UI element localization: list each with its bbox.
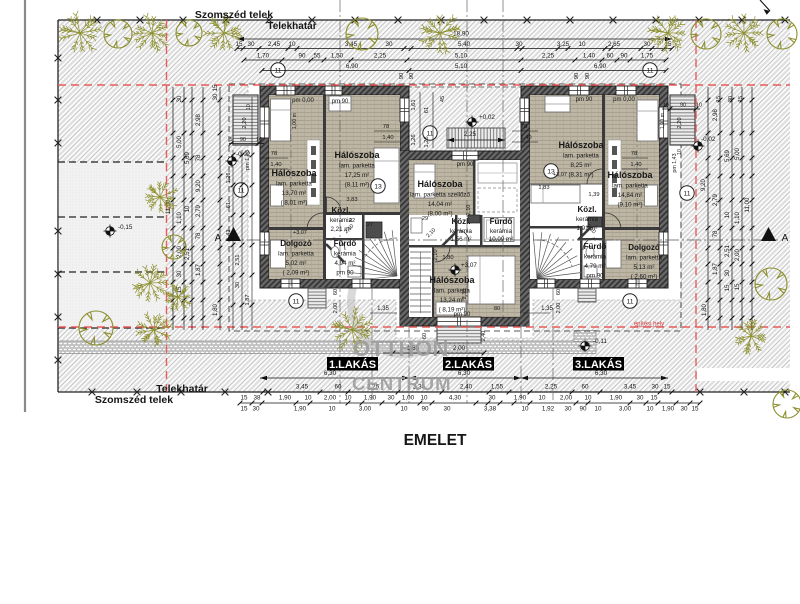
svg-text:Dolgozó: Dolgozó [628,243,660,252]
svg-text:1,35: 1,35 [377,306,389,312]
svg-text:2,98: 2,98 [195,113,202,125]
svg-text:15: 15 [650,395,658,402]
svg-text:kerámia: kerámia [490,228,513,235]
svg-text:1,80: 1,80 [212,303,219,315]
svg-text:Közl.: Közl. [331,206,350,215]
svg-text:11: 11 [626,298,633,305]
svg-text:15: 15 [240,406,248,413]
svg-text:1,50: 1,50 [331,53,344,60]
svg-text:30: 30 [724,269,731,276]
svg-text:A: A [782,233,789,244]
svg-text:1,40: 1,40 [270,162,281,168]
svg-text:90: 90 [574,73,580,79]
svg-text:90: 90 [298,53,306,60]
svg-text:Hálószoba: Hálószoba [334,150,380,160]
svg-text:kerámia: kerámia [450,228,473,235]
svg-text:10: 10 [724,211,731,218]
svg-text:8,25 m²: 8,25 m² [571,162,592,169]
svg-text:2,98: 2,98 [712,108,719,120]
svg-text:lam. parketta: lam. parketta [612,183,648,190]
svg-text:30: 30 [488,395,496,402]
svg-text:1,90: 1,90 [610,395,623,402]
svg-text:1,00 m: 1,00 m [292,112,298,129]
svg-text:1,90 m: 1,90 m [660,112,666,129]
svg-text:2,79: 2,79 [195,204,202,216]
svg-text:pm 1,43: pm 1,43 [672,153,678,172]
svg-text:61: 61 [226,202,232,208]
svg-text:2,25: 2,25 [545,384,558,391]
svg-text:EMELET: EMELET [404,432,467,449]
svg-text:2,51: 2,51 [724,244,731,256]
svg-text:3,00: 3,00 [619,406,632,413]
svg-text:10: 10 [420,395,428,402]
svg-text:2,20: 2,20 [242,117,248,128]
svg-text:Szomszéd telek: Szomszéd telek [95,394,173,406]
svg-text:5,69: 5,69 [184,151,191,163]
svg-text:78: 78 [195,232,202,239]
svg-text:(8,11 m²): (8,11 m²) [345,182,370,189]
svg-text:11,00: 11,00 [744,197,751,212]
svg-text:30: 30 [252,406,260,413]
svg-text:38: 38 [253,395,261,402]
svg-text:1,40: 1,40 [382,135,393,141]
svg-text:90: 90 [399,73,405,79]
svg-text:(9,10 m²): (9,10 m²) [617,202,642,209]
svg-text:2,65: 2,65 [608,41,621,48]
svg-text:90: 90 [421,406,429,413]
svg-text:-0,15: -0,15 [118,224,133,231]
svg-text:30: 30 [385,41,393,48]
svg-text:2,10: 2,10 [433,249,439,260]
svg-text:2,00: 2,00 [560,395,573,402]
svg-text:2,00: 2,00 [556,303,562,314]
svg-text:2,25: 2,25 [374,53,387,60]
svg-text:9,20: 9,20 [700,178,707,190]
svg-text:30: 30 [176,95,183,102]
svg-text:90: 90 [409,73,415,79]
svg-text:60: 60 [581,384,589,391]
svg-text:2.LAKÁS: 2.LAKÁS [445,358,492,371]
svg-text:60: 60 [333,289,339,295]
svg-text:5,10: 5,10 [455,53,468,60]
svg-text:3,00: 3,00 [359,406,372,413]
svg-text:( 2,60 m²): ( 2,60 m²) [631,274,658,281]
svg-text:5,02 m²: 5,02 m² [286,260,307,267]
svg-text:1,90: 1,90 [514,395,527,402]
svg-text:61: 61 [424,107,430,113]
svg-text:15: 15 [738,96,744,102]
svg-text:13,24 m²: 13,24 m² [440,297,464,304]
svg-text:pm 90: pm 90 [336,270,354,277]
svg-text:10: 10 [304,395,312,402]
svg-text:(8,00 m²): (8,00 m²) [427,211,452,218]
svg-text:Fürdő: Fürdő [584,242,607,251]
svg-text:5,69: 5,69 [724,149,731,161]
svg-text:1,39: 1,39 [588,192,599,198]
svg-text:2,40: 2,40 [460,384,473,391]
svg-text:+0,02: +0,02 [479,114,495,121]
svg-text:lam. parketta: lam. parketta [339,163,375,170]
svg-text:4,94 m²: 4,94 m² [335,260,356,267]
svg-text:(8,31 m²): (8,31 m²) [568,172,593,179]
svg-text:lam. parketta: lam. parketta [276,181,312,188]
svg-text:78: 78 [195,154,202,161]
svg-text:5,00: 5,00 [734,147,741,159]
svg-text:90: 90 [680,103,686,109]
svg-text:3,25: 3,25 [557,41,570,48]
svg-text:kerámia: kerámia [584,254,607,261]
svg-text:90: 90 [585,73,591,79]
svg-text:17,25 m²: 17,25 m² [345,172,369,179]
svg-text:Közl.: Közl. [451,217,470,226]
svg-text:1,40: 1,40 [630,162,641,168]
svg-text:2,20: 2,20 [677,117,683,128]
svg-text:Telekhatár: Telekhatár [267,21,316,32]
svg-text:1,10: 1,10 [176,211,183,223]
svg-text:2,00: 2,00 [333,303,339,314]
svg-text:80: 80 [494,306,500,312]
svg-text:30: 30 [387,395,395,402]
svg-text:Közl.: Közl. [577,205,596,214]
svg-text:1,70: 1,70 [257,53,270,60]
svg-text:1,80: 1,80 [442,255,453,261]
svg-text:15: 15 [663,384,671,391]
svg-text:kerámia: kerámia [334,251,357,258]
svg-text:lam. parketta: lam. parketta [278,251,314,258]
svg-text:2,00: 2,00 [453,345,466,352]
svg-text:1,87: 1,87 [195,263,202,275]
svg-text:10: 10 [663,103,669,109]
svg-text:45: 45 [440,96,446,102]
svg-text:pm 90: pm 90 [332,99,349,105]
svg-text:építési hely: építési hely [634,322,664,328]
svg-text:30: 30 [515,41,523,48]
svg-text:A: A [215,233,222,244]
svg-text:1,83: 1,83 [538,185,549,191]
svg-text:10: 10 [594,406,602,413]
svg-text:Dolgozó: Dolgozó [280,239,312,248]
svg-text:10: 10 [538,395,546,402]
svg-text:1,56 m²: 1,56 m² [451,236,472,243]
svg-text:CENTRUM: CENTRUM [352,373,452,394]
svg-text:18,90: 18,90 [453,31,469,38]
svg-text:90: 90 [240,137,246,143]
svg-text:15: 15 [724,284,731,291]
svg-text:-0,02: -0,02 [236,151,251,158]
svg-text:60: 60 [334,384,342,391]
svg-text:3.LAKÁS: 3.LAKÁS [575,358,622,371]
svg-text:1,55: 1,55 [491,384,504,391]
svg-text:6,90: 6,90 [594,63,607,70]
svg-text:1,92: 1,92 [542,406,555,413]
svg-text:10: 10 [521,406,529,413]
svg-text:6,30: 6,30 [458,370,471,377]
svg-text:30: 30 [564,406,572,413]
svg-text:Fürdő: Fürdő [334,239,357,248]
svg-text:15: 15 [235,41,243,48]
svg-text:1,40: 1,40 [520,135,531,141]
svg-text:2,38: 2,38 [462,289,468,300]
svg-text:1,26: 1,26 [226,173,232,184]
svg-text:11: 11 [292,298,299,305]
svg-text:10: 10 [646,406,654,413]
svg-text:60: 60 [606,53,614,60]
svg-text:11: 11 [683,190,690,197]
svg-text:5: 5 [230,137,233,143]
svg-text:pm 90: pm 90 [457,162,474,168]
svg-text:5,10: 5,10 [455,63,468,70]
svg-text:10: 10 [184,205,191,212]
svg-text:1,26: 1,26 [424,136,430,147]
svg-text:78: 78 [271,151,277,157]
svg-text:22: 22 [349,218,355,224]
svg-text:2,40: 2,40 [481,331,487,342]
svg-text:-0,11: -0,11 [593,338,607,345]
svg-text:30: 30 [680,406,688,413]
svg-text:3,45: 3,45 [624,384,637,391]
svg-text:30: 30 [728,96,734,102]
svg-text:60: 60 [556,289,562,295]
svg-text:5,00: 5,00 [176,135,183,147]
svg-text:2,00: 2,00 [734,248,741,260]
svg-text:90: 90 [579,406,587,413]
svg-text:15: 15 [212,84,219,91]
svg-text:2,51: 2,51 [184,247,191,259]
svg-text:14,84 m²: 14,84 m² [618,192,642,199]
svg-text:1,10: 1,10 [734,211,741,223]
svg-text:lam. parketta: lam. parketta [563,153,599,160]
svg-text:1,35: 1,35 [541,306,553,312]
svg-text:Hálószoba: Hálószoba [271,168,317,178]
svg-text:+3,07: +3,07 [461,262,477,269]
svg-text:30: 30 [443,406,451,413]
svg-text:1,90: 1,90 [294,406,307,413]
svg-text:78: 78 [521,124,527,130]
svg-text:10: 10 [584,395,592,402]
svg-text:2,25: 2,25 [464,131,477,138]
svg-text:1,43: 1,43 [226,230,232,241]
svg-text:1,26: 1,26 [411,134,417,145]
svg-text:30: 30 [235,282,241,288]
svg-text:15: 15 [240,395,248,402]
svg-text:pm 90: pm 90 [576,97,593,103]
svg-text:1,00: 1,00 [402,395,415,402]
svg-text:Szomszéd telek: Szomszéd telek [195,9,273,21]
svg-text:Hálószoba: Hálószoba [607,170,653,180]
svg-text:1.LAKÁS: 1.LAKÁS [329,358,376,371]
svg-text:1,90: 1,90 [279,395,292,402]
svg-text:78: 78 [712,230,719,237]
svg-text:3,45: 3,45 [345,41,358,48]
svg-text:10: 10 [328,406,336,413]
svg-text:30: 30 [212,93,219,100]
svg-text:30: 30 [247,41,255,48]
svg-text:30: 30 [176,270,183,277]
svg-text:lam. parketta szellőző: lam. parketta szellőző [410,192,470,199]
svg-text:+3,07: +3,07 [553,172,567,178]
svg-text:10: 10 [344,395,352,402]
svg-text:11: 11 [237,187,244,194]
svg-text:13,70 m²: 13,70 m² [282,190,306,197]
svg-text:15: 15 [691,406,699,413]
svg-text:3,45: 3,45 [296,384,309,391]
svg-text:10: 10 [256,137,262,143]
svg-text:2,79: 2,79 [712,193,719,205]
svg-text:1,75: 1,75 [641,53,654,60]
svg-text:4,30: 4,30 [449,395,462,402]
svg-text:+3,07: +3,07 [293,230,307,236]
svg-text:55: 55 [313,53,321,60]
svg-text:Hálószoba: Hálószoba [429,275,475,285]
svg-text:29: 29 [422,216,428,222]
svg-text:2,25: 2,25 [542,53,555,60]
svg-text:4,79 m²: 4,79 m² [585,263,606,270]
svg-text:5,40: 5,40 [458,41,471,48]
svg-text:1,87: 1,87 [245,295,251,306]
svg-text:10: 10 [288,41,296,48]
svg-text:pm 0,00: pm 0,00 [613,97,635,103]
svg-text:2,45: 2,45 [268,41,281,48]
svg-text:14,04 m²: 14,04 m² [428,201,452,208]
svg-text:90: 90 [620,53,628,60]
svg-text:6,90: 6,90 [346,63,359,70]
svg-text:9,20: 9,20 [195,179,202,191]
svg-text:1,40: 1,40 [583,53,596,60]
svg-text:-0,02: -0,02 [701,136,716,143]
svg-text:5,13 m²: 5,13 m² [634,264,655,271]
svg-text:1,80: 1,80 [701,303,708,315]
svg-text:3,38: 3,38 [484,406,497,413]
svg-text:13: 13 [374,183,382,190]
svg-text:Hálószoba: Hálószoba [558,140,604,150]
svg-text:2,10: 2,10 [466,205,472,216]
svg-text:2,51: 2,51 [235,255,241,266]
svg-text:10: 10 [400,406,408,413]
svg-text:15: 15 [716,96,722,102]
svg-text:6,30: 6,30 [324,370,337,377]
svg-text:10,09 m²: 10,09 m² [489,236,513,243]
svg-text:1,90: 1,90 [364,395,377,402]
svg-text:kerámia: kerámia [576,216,599,223]
svg-text:Fürdő: Fürdő [490,217,513,226]
svg-text:pm 90: pm 90 [586,273,604,280]
svg-text:10: 10 [696,103,702,109]
svg-text:( 2,09 m²): ( 2,09 m²) [283,270,310,277]
svg-text:2,00: 2,00 [324,395,337,402]
svg-text:30: 30 [636,395,644,402]
svg-text:15: 15 [734,283,741,290]
svg-text:30: 30 [643,41,651,48]
svg-text:lam. parketta: lam. parketta [626,255,662,262]
svg-text:30: 30 [651,384,659,391]
svg-text:27: 27 [367,222,373,228]
svg-text:Hálószoba: Hálószoba [417,179,463,189]
svg-text:pm 90: pm 90 [454,312,471,318]
svg-text:10: 10 [578,41,586,48]
svg-text:3,83: 3,83 [346,197,357,203]
svg-text:1,61: 1,61 [411,99,417,110]
svg-text:6,30: 6,30 [595,370,608,377]
svg-text:pm 0,00: pm 0,00 [292,98,314,104]
svg-text:78: 78 [383,124,389,130]
svg-text:1,87: 1,87 [712,262,719,274]
svg-text:1,90: 1,90 [662,406,675,413]
svg-text:( 8,01 m²): ( 8,01 m²) [281,200,308,207]
svg-text:10: 10 [246,104,252,110]
svg-text:78: 78 [631,151,637,157]
